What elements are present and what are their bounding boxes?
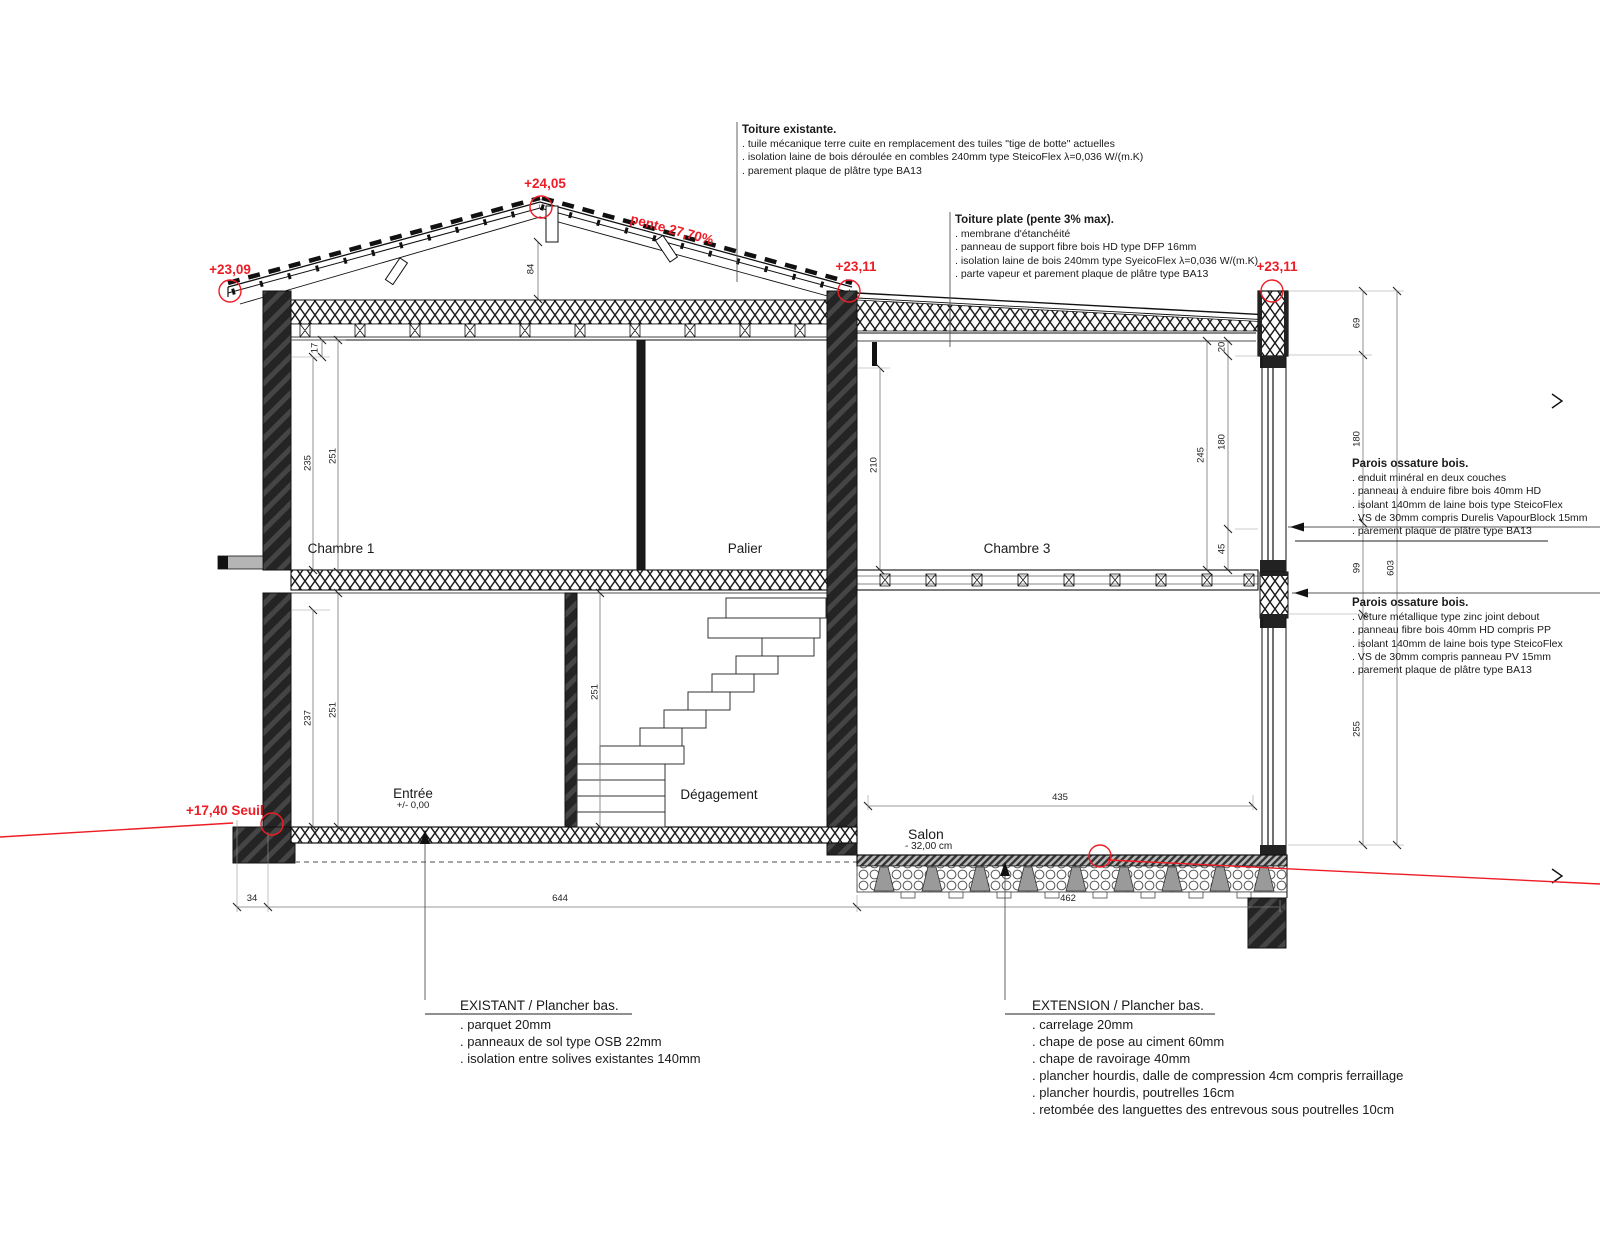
note-parois-haut: Parois ossature bois. . enduit minéral e… (1352, 458, 1588, 538)
spec-item: . carrelage 20mm (1032, 1016, 1403, 1033)
ground-line-left (0, 823, 233, 837)
note-title: Parois ossature bois. (1352, 458, 1588, 471)
dim-251-lower: 251 (328, 702, 339, 718)
spec-title: EXISTANT / Plancher bas. (460, 997, 701, 1014)
architectural-section-drawing: +24,05 +23,09 +23,11 +23,11 +17,40 Seuil… (0, 0, 1600, 1248)
dim-251-stair: 251 (590, 684, 601, 700)
dim-462: 462 (1060, 893, 1076, 904)
room-palier: Palier (728, 541, 763, 556)
dim-17: 17 (310, 343, 321, 354)
room-degagement: Dégagement (680, 787, 757, 802)
dim-210: 210 (869, 457, 880, 473)
note-parois-bas: Parois ossature bois. . vêture métalliqu… (1352, 597, 1563, 677)
room-chambre3: Chambre 3 (984, 541, 1051, 556)
spec-item: . chape de ravoirage 40mm (1032, 1050, 1403, 1067)
note-item: . vêture métallique type zinc joint debo… (1352, 611, 1563, 624)
level-seuil: +17,40 Seuil (186, 803, 264, 818)
dim-20: 20 (1217, 342, 1228, 353)
note-item: . parement plaque de plâtre type BA13 (1352, 664, 1563, 677)
room-entree: Entrée (393, 786, 433, 801)
dim-45: 45 (1217, 544, 1228, 555)
dim-180-outer: 180 (1352, 431, 1363, 447)
spec-item: . plancher hourdis, dalle de compression… (1032, 1067, 1403, 1084)
room-entree-level: +/- 0,00 (397, 800, 429, 811)
note-item: . parte vapeur et parement plaque de plâ… (955, 268, 1285, 281)
dim-603: 603 (1386, 560, 1397, 576)
note-title: Toiture plate (pente 3% max). (955, 214, 1285, 227)
note-item: . parement plaque de plâtre type BA13 (1352, 525, 1588, 538)
spec-item: . chape de pose au ciment 60mm (1032, 1033, 1403, 1050)
note-item: . isolation laine de bois 240mm type Sye… (955, 255, 1285, 268)
pitched-roof (228, 198, 852, 304)
dim-34: 34 (247, 893, 258, 904)
dim-180-window: 180 (1217, 434, 1228, 450)
note-title: Parois ossature bois. (1352, 597, 1563, 610)
dim-84: 84 (526, 264, 537, 275)
note-item: . panneau fibre bois 40mm HD compris PP (1352, 624, 1563, 637)
dim-251-upper: 251 (328, 448, 339, 464)
room-salon: Salon (908, 826, 944, 842)
note-item: . panneau de support fibre bois HD type … (955, 241, 1285, 254)
level-markers (0, 196, 1600, 884)
flat-roof (857, 293, 1288, 341)
spec-item: . retombée des languettes des entrevous … (1032, 1101, 1403, 1118)
note-item: . parement plaque de plâtre type BA13 (742, 165, 1172, 178)
room-chambre1: Chambre 1 (308, 541, 375, 556)
note-item: . membrane d'étanchéité (955, 228, 1285, 241)
note-item: . VS de 30mm compris panneau PV 15mm (1352, 651, 1563, 664)
dim-255: 255 (1352, 721, 1363, 737)
spec-item: . plancher hourdis, poutrelles 16cm (1032, 1084, 1403, 1101)
note-item: . enduit minéral en deux couches (1352, 472, 1588, 485)
note-item: . isolant 140mm de laine bois type Steic… (1352, 638, 1563, 651)
dim-237: 237 (303, 710, 314, 726)
note-toiture-plate: Toiture plate (pente 3% max). . membrane… (955, 214, 1285, 281)
dim-435: 435 (1052, 792, 1068, 803)
note-toiture-existante: Toiture existante. . tuile mécanique ter… (742, 124, 1172, 178)
level-eave-left: +23,09 (209, 262, 251, 277)
dim-644: 644 (552, 893, 568, 904)
spec-item: . panneaux de sol type OSB 22mm (460, 1033, 701, 1050)
spec-title: EXTENSION / Plancher bas. (1032, 997, 1403, 1014)
dim-69: 69 (1352, 318, 1363, 329)
upper-floor (218, 556, 1258, 593)
note-item: . VS de 30mm compris Durelis VapourBlock… (1352, 512, 1588, 525)
dim-99: 99 (1352, 563, 1363, 574)
dim-245: 245 (1196, 447, 1207, 463)
level-eave-center: +23,11 (836, 259, 877, 274)
spec-existant-plancher: EXISTANT / Plancher bas. . parquet 20mm … (460, 997, 701, 1067)
level-ridge: +24,05 (524, 176, 566, 191)
dim-235: 235 (303, 455, 314, 471)
existing-ceiling (291, 300, 827, 340)
spec-extension-plancher: EXTENSION / Plancher bas. . carrelage 20… (1032, 997, 1403, 1118)
note-item: . isolation laine de bois déroulée en co… (742, 151, 1172, 164)
note-title: Toiture existante. (742, 124, 1172, 137)
note-item: . isolant 140mm de laine bois type Steic… (1352, 499, 1588, 512)
note-item: . tuile mécanique terre cuite en remplac… (742, 138, 1172, 151)
note-item: . panneau à enduire fibre bois 40mm HD (1352, 485, 1588, 498)
ground-floor-existing (291, 827, 857, 862)
spec-item: . parquet 20mm (460, 1016, 701, 1033)
extension-facade (1258, 291, 1288, 855)
room-salon-level: - 32,00 cm (905, 841, 952, 852)
spec-item: . isolation entre solives existantes 140… (460, 1050, 701, 1067)
